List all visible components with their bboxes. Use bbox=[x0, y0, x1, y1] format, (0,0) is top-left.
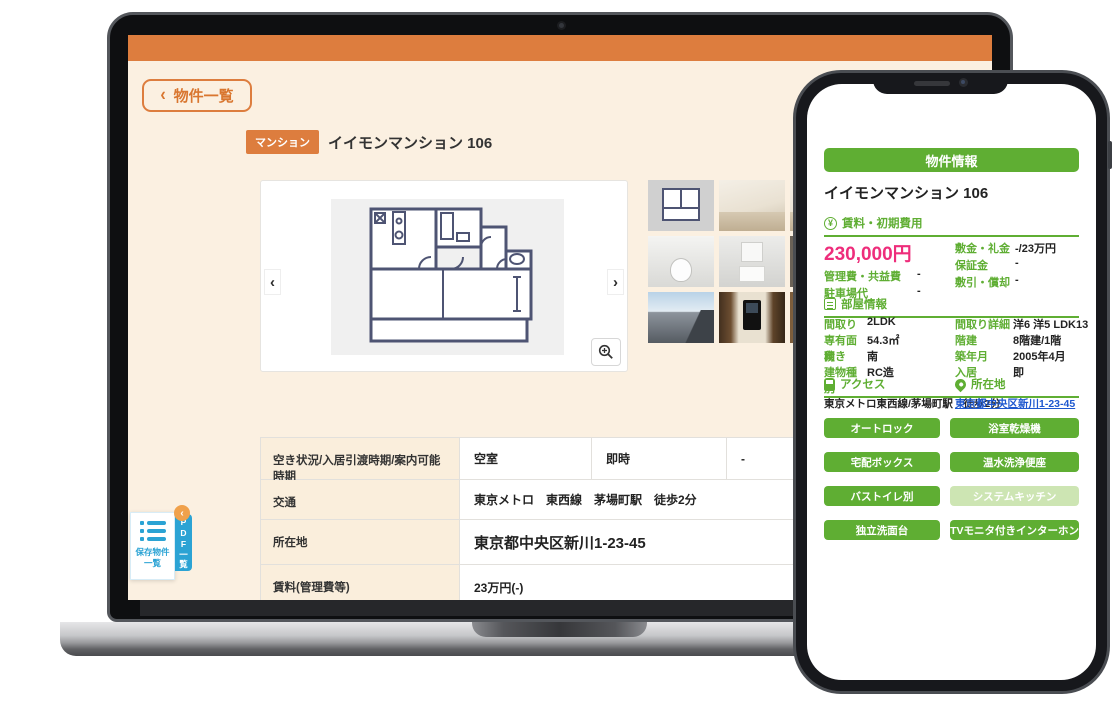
fee-row: 敷金・礼金 -/23万円 bbox=[955, 240, 1056, 256]
front-camera-icon bbox=[959, 78, 968, 87]
stage: ‹ 物件一覧 マンション イイモンマンション 106 bbox=[0, 0, 1118, 701]
feature-delivery-box[interactable]: 宅配ボックス bbox=[824, 452, 940, 472]
property-info-header-button[interactable]: 物件情報 bbox=[824, 148, 1079, 172]
saved-list-icon bbox=[140, 521, 166, 541]
back-to-list-button[interactable]: ‹ 物件一覧 bbox=[142, 79, 252, 112]
thumbnail-intercom[interactable] bbox=[719, 292, 785, 343]
rent-price: 230,000円 bbox=[824, 239, 912, 266]
row-label: 賃料(管理費等) bbox=[261, 565, 459, 600]
feature-system-kitchen-disabled: システムキッチン bbox=[950, 486, 1079, 506]
cell-movein: 即時 bbox=[591, 438, 726, 479]
thumbnail-floorplan[interactable] bbox=[648, 180, 714, 231]
room-row: 階建8階建/1階 bbox=[955, 332, 1061, 348]
phone-property-title: イイモンマンション 106 bbox=[824, 182, 988, 203]
yen-circle-icon: ¥ bbox=[824, 217, 837, 230]
pdf-list-tab[interactable]: PDF一覧 bbox=[175, 514, 192, 571]
phone-frame: 物件情報 イイモンマンション 106 ¥ 賃料・初期費用 230,000円 管理… bbox=[793, 70, 1110, 694]
prev-arrow-icon: ‹ bbox=[270, 274, 275, 291]
collapse-icon: ‹ bbox=[180, 508, 183, 519]
saved-widget: 保存物件一覧 PDF一覧 ‹ bbox=[130, 512, 196, 582]
room-section-header: 部屋情報 bbox=[824, 296, 1079, 318]
saved-properties-label: 保存物件一覧 bbox=[132, 547, 174, 568]
cell-status: 空室 bbox=[459, 438, 591, 479]
access-section-title: アクセス bbox=[840, 376, 885, 392]
floorplan-image bbox=[331, 199, 564, 355]
thumbnail-toilet[interactable] bbox=[648, 236, 714, 287]
laptop-base-notch bbox=[472, 622, 647, 637]
next-arrow-icon: › bbox=[613, 274, 618, 291]
feature-autolock[interactable]: オートロック bbox=[824, 418, 940, 438]
fee-row: 管理費・共益費 - bbox=[824, 268, 921, 284]
magnifier-icon bbox=[598, 344, 614, 360]
row-label: 交通 bbox=[261, 480, 459, 519]
pdf-list-label: PDF一覧 bbox=[178, 517, 190, 569]
floorplan-drawing bbox=[331, 199, 564, 355]
feature-tv-intercom[interactable]: TVモニタ付きインターホン bbox=[950, 520, 1079, 540]
room-row: 向き南 bbox=[824, 348, 878, 364]
property-header: マンション イイモンマンション 106 bbox=[246, 130, 492, 154]
carousel-prev-button[interactable]: ‹ bbox=[264, 269, 281, 295]
photo-carousel: ‹ › bbox=[260, 180, 628, 372]
room-row: 築年月2005年4月 bbox=[955, 348, 1066, 364]
phone-notch bbox=[873, 73, 1008, 94]
thumbnail-washbasin[interactable] bbox=[719, 236, 785, 287]
property-title: イイモンマンション 106 bbox=[328, 132, 492, 153]
room-row: 間取り2LDK bbox=[824, 316, 896, 332]
feature-button-grid: オートロック 浴室乾燥機 宅配ボックス 温水洗浄便座 バストイレ別 システムキッ… bbox=[824, 418, 1079, 540]
row-label: 空き状況/入居引渡時期/案内可能時期 bbox=[261, 438, 459, 479]
row-label: 所在地 bbox=[261, 520, 459, 564]
property-type-badge: マンション bbox=[246, 130, 319, 154]
access-section-header: アクセス 所在地 bbox=[824, 376, 1079, 398]
rent-section-header: ¥ 賃料・初期費用 bbox=[824, 215, 1079, 237]
room-row: 間取り詳細洋6 洋5 LDK13 bbox=[955, 316, 1088, 332]
room-list-icon bbox=[824, 298, 836, 310]
feature-washlet[interactable]: 温水洗浄便座 bbox=[950, 452, 1079, 472]
map-pin-icon bbox=[953, 376, 969, 392]
address-link[interactable]: 東京都中央区新川1-23-45 bbox=[955, 396, 1075, 411]
thumbnail-balcony[interactable] bbox=[648, 292, 714, 343]
image-zoom-button[interactable] bbox=[591, 338, 621, 366]
feature-separate-bath-toilet[interactable]: バストイレ別 bbox=[824, 486, 940, 506]
location-section-title: 所在地 bbox=[971, 376, 1006, 392]
back-chevron-icon: ‹ bbox=[160, 85, 165, 106]
rent-section-title: 賃料・初期費用 bbox=[842, 215, 923, 231]
speaker-icon bbox=[914, 81, 950, 86]
room-section-title: 部屋情報 bbox=[841, 296, 887, 312]
carousel-next-button[interactable]: › bbox=[607, 269, 624, 295]
webcam-icon bbox=[559, 23, 564, 28]
saved-properties-button[interactable]: 保存物件一覧 bbox=[130, 512, 175, 580]
app-header-bar bbox=[128, 35, 992, 61]
feature-bathroom-dryer[interactable]: 浴室乾燥機 bbox=[950, 418, 1079, 438]
back-button-label: 物件一覧 bbox=[174, 85, 234, 106]
thumbnail-room[interactable] bbox=[719, 180, 785, 231]
feature-independent-washstand[interactable]: 独立洗面台 bbox=[824, 520, 940, 540]
phone-screen: 物件情報 イイモンマンション 106 ¥ 賃料・初期費用 230,000円 管理… bbox=[807, 84, 1096, 680]
fee-row: 保証金 - bbox=[955, 257, 1019, 273]
collapse-widget-button[interactable]: ‹ bbox=[174, 505, 190, 521]
train-icon bbox=[824, 378, 835, 391]
fee-row: 敷引・償却 - bbox=[955, 274, 1019, 290]
phone-side-button bbox=[1108, 141, 1112, 169]
